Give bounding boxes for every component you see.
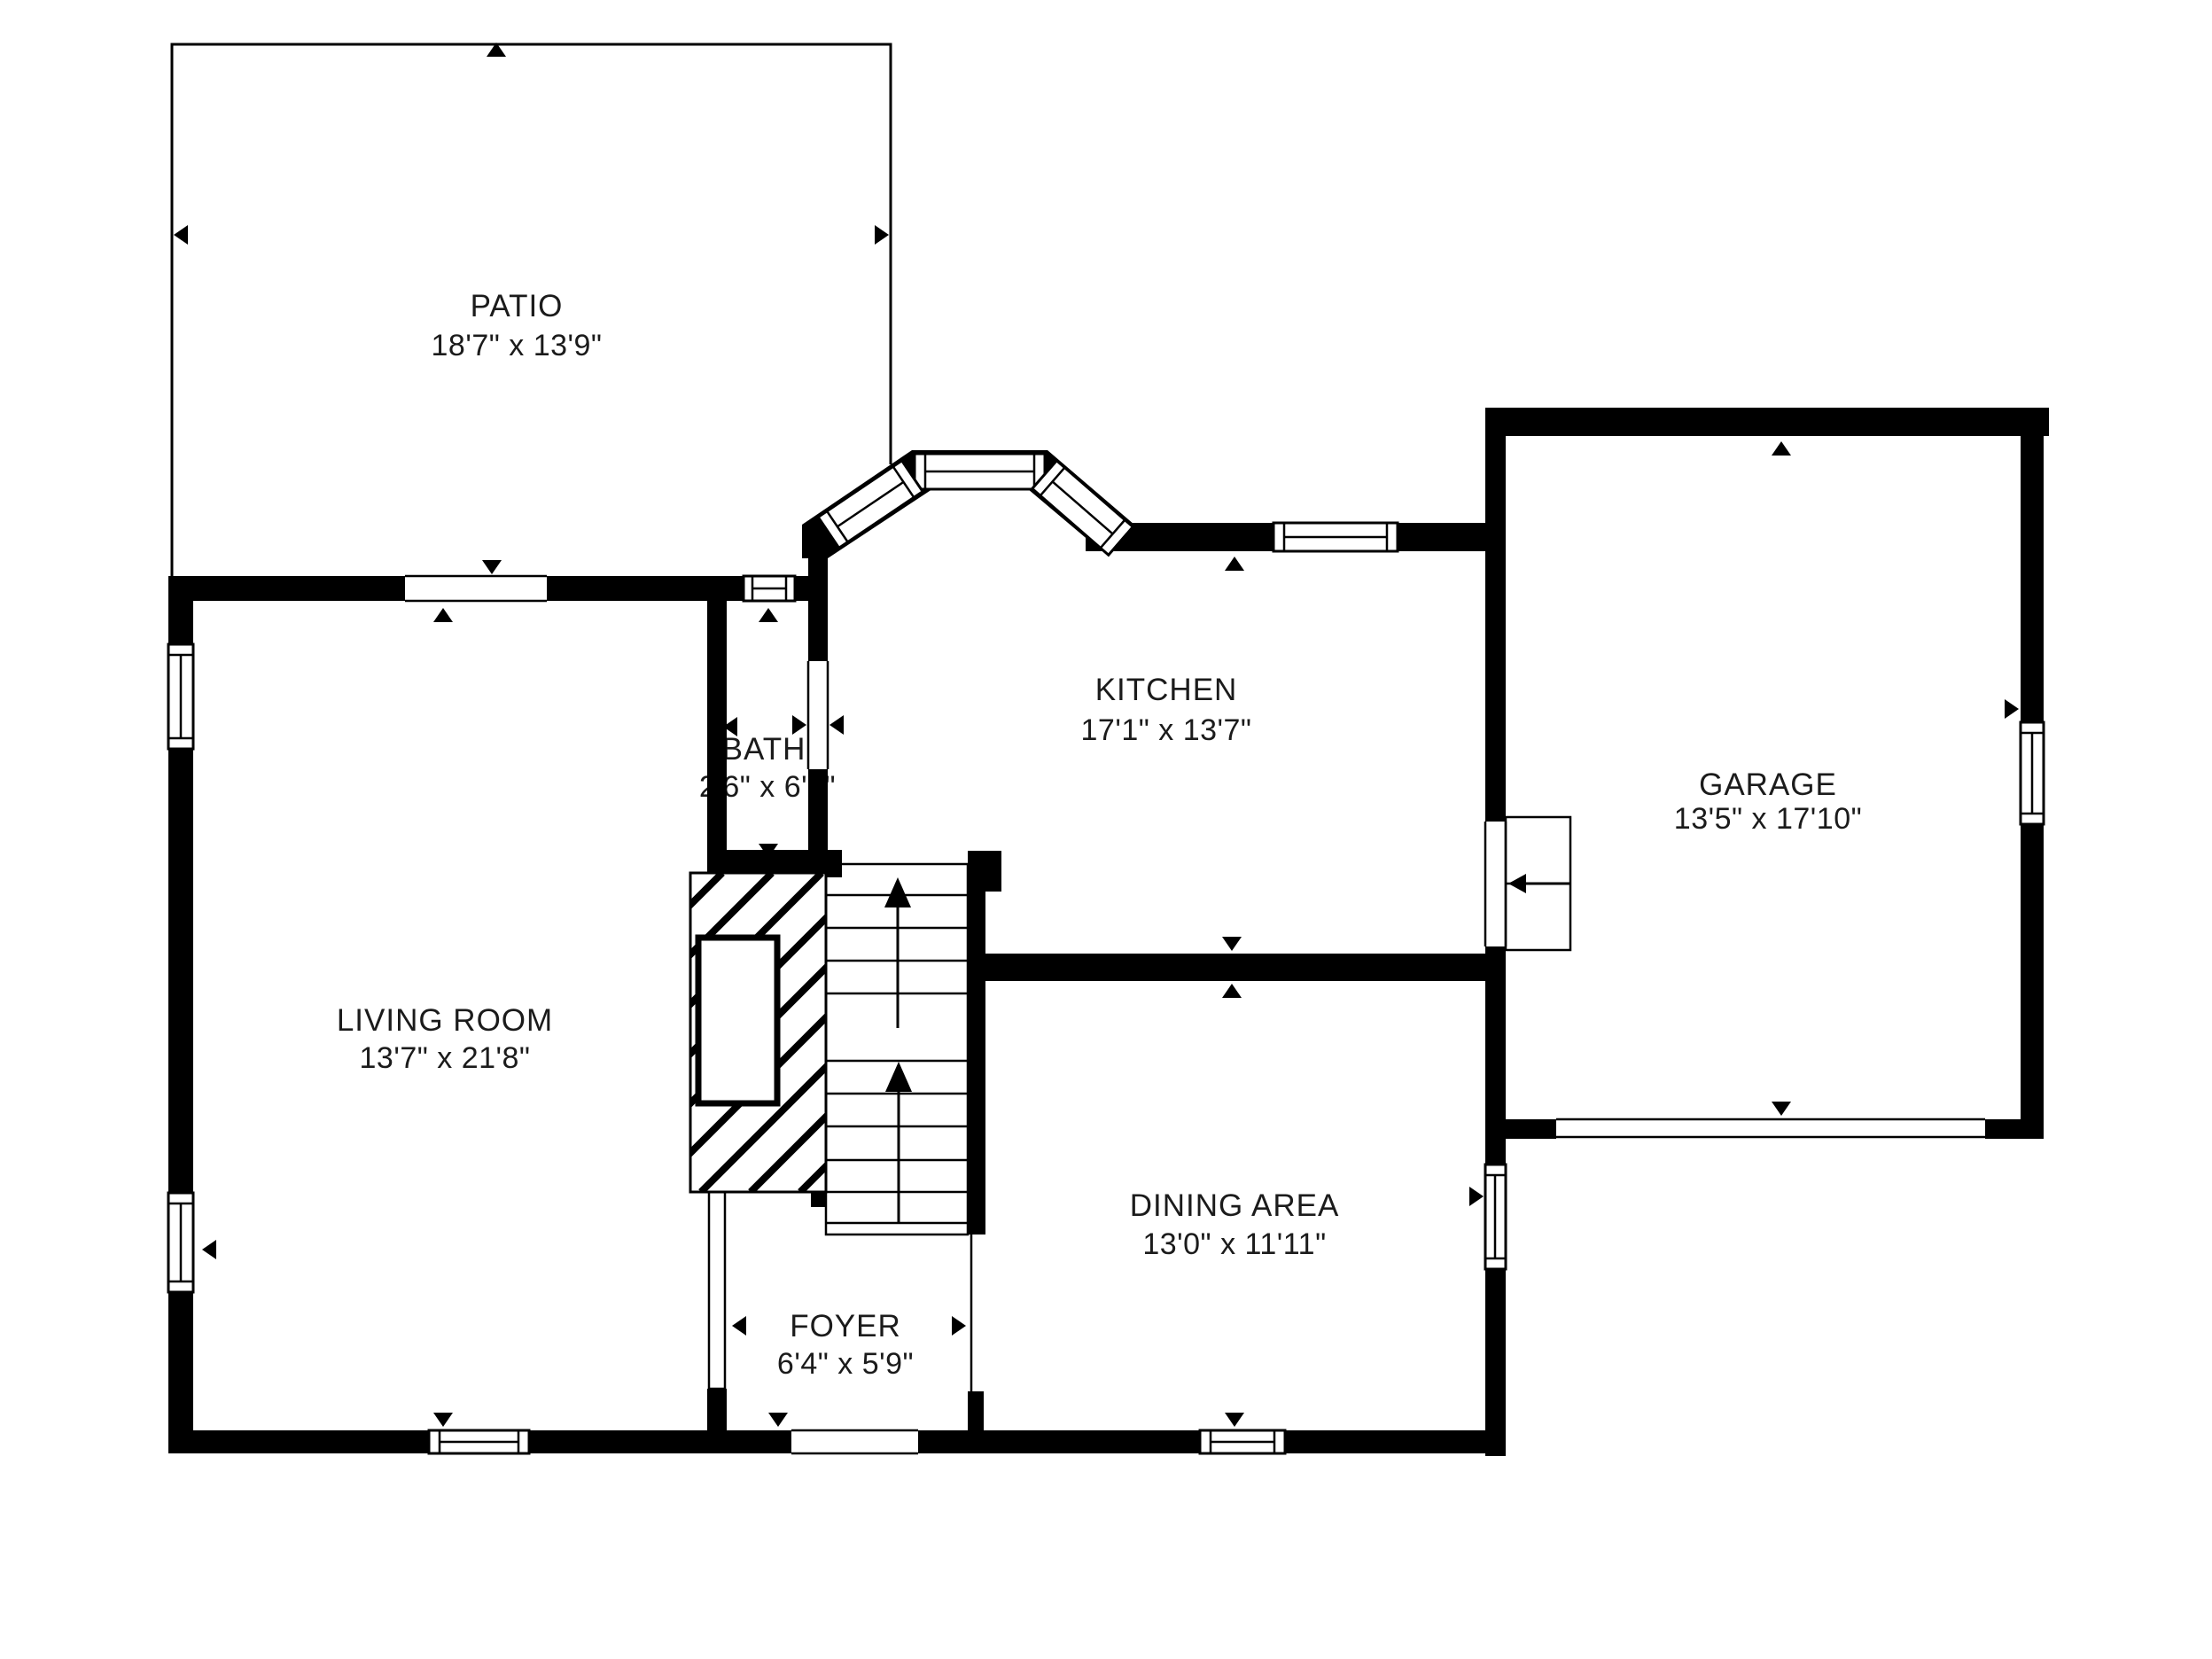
arrow-kitchen-door-left-icon	[829, 715, 844, 735]
garage-entry-opening	[1485, 822, 1506, 946]
wall-kitchen-dining-divider	[984, 954, 1485, 981]
door-openings	[405, 576, 1985, 1453]
bath-door-opening	[808, 661, 828, 769]
garage-entry-landing	[1506, 817, 1570, 950]
wall-foyer-left-stub	[707, 1389, 727, 1453]
arrow-foyer-door-icon	[768, 1413, 788, 1427]
front-door-opening	[791, 1430, 918, 1453]
window-garage-right	[2021, 722, 2044, 824]
arrow-dining-bottom-icon	[1225, 1413, 1244, 1427]
stairs	[826, 864, 968, 1235]
arrow-garage-door-icon	[1772, 1102, 1791, 1116]
room-label-dining-area: DINING AREA 13'0" x 11'11"	[1130, 1188, 1340, 1261]
arrow-garage-top-icon	[1772, 441, 1791, 456]
arrow-foyer-left-icon	[732, 1316, 746, 1336]
wall-living-top-left	[168, 576, 405, 601]
stair-up-arrow-upper	[884, 877, 911, 1028]
room-labels: PATIO 18'7" x 13'9" KITCHEN 17'1" x 13'7…	[337, 289, 1862, 1381]
arrow-living-left-icon	[202, 1240, 216, 1259]
garage-entry-arrow-icon	[1508, 874, 1526, 893]
wall-living-right	[707, 576, 727, 873]
patio-name: PATIO	[471, 289, 564, 323]
firebox	[698, 938, 777, 1103]
arrow-patio-left-icon	[174, 225, 188, 245]
window-bay-center	[915, 454, 1045, 489]
arrow-divider-up-icon	[1222, 984, 1242, 998]
foyer-dims: 6'4" x 5'9"	[777, 1347, 914, 1381]
window-dining-right	[1485, 1164, 1506, 1269]
wall-garage-bottom-right	[1985, 1119, 2044, 1139]
garage-name: GARAGE	[1699, 767, 1837, 802]
wall-kitchen-left-lower	[808, 769, 828, 877]
wall-bottom-a	[168, 1430, 429, 1453]
arrow-foyer-right-icon	[952, 1316, 966, 1336]
room-label-patio: PATIO 18'7" x 13'9"	[432, 289, 603, 362]
floor-plan: BATH 2'6" x 6'8"	[0, 0, 2212, 1659]
arrow-patio-door-up-icon	[433, 608, 453, 622]
patio-door-opening	[405, 576, 547, 601]
window-bay-right	[1032, 461, 1133, 555]
wall-chimney-stub	[811, 1192, 826, 1207]
wall-garage-bottom-left	[1506, 1119, 1556, 1139]
room-label-living-room: LIVING ROOM 13'7" x 21'8"	[337, 1003, 553, 1075]
arrow-patio-right-icon	[875, 225, 889, 245]
wall-stairs-right	[968, 851, 985, 1235]
patio-dims: 18'7" x 13'9"	[432, 329, 603, 362]
bath-name: BATH	[722, 732, 806, 767]
dining-area-dims: 13'0" x 11'11"	[1142, 1227, 1326, 1261]
kitchen-dims: 17'1" x 13'7"	[1081, 713, 1252, 747]
foyer-living-opening	[709, 1192, 725, 1389]
kitchen-name: KITCHEN	[1095, 673, 1238, 707]
garage-door-opening	[1556, 1119, 1985, 1137]
arrow-living-bottom-icon	[433, 1413, 453, 1427]
window-living-left-upper	[168, 644, 193, 749]
living-room-dims: 13'7" x 21'8"	[360, 1041, 531, 1075]
stair-up-arrow-lower	[885, 1062, 912, 1223]
living-room-name: LIVING ROOM	[337, 1003, 553, 1038]
window-living-left-lower	[168, 1193, 193, 1292]
wall-bottom-d	[1285, 1430, 1506, 1453]
arrow-bath-window-icon	[759, 608, 778, 622]
wall-foyer-right-stub	[968, 1391, 984, 1453]
window-dining-bottom	[1200, 1430, 1285, 1453]
wall-bottom-c	[918, 1430, 1200, 1453]
room-label-kitchen: KITCHEN 17'1" x 13'7"	[1081, 673, 1252, 747]
foyer-name: FOYER	[790, 1309, 901, 1344]
arrow-patio-door-down-icon	[482, 560, 502, 574]
arrow-garage-right-icon	[2005, 699, 2019, 719]
wall-garage-top	[1485, 408, 2049, 436]
wall-bottom-b	[529, 1430, 791, 1453]
garage-dims: 13'5" x 17'10"	[1674, 802, 1862, 836]
arrow-dining-window-icon	[1469, 1187, 1484, 1206]
arrow-kitchen-top-icon	[1225, 557, 1244, 571]
room-label-foyer: FOYER 6'4" x 5'9"	[777, 1309, 914, 1381]
window-bath-top	[744, 576, 795, 601]
window-kitchen-top	[1273, 523, 1398, 551]
arrow-divider-down-icon	[1222, 937, 1242, 951]
room-label-garage: GARAGE 13'5" x 17'10"	[1674, 767, 1862, 836]
window-living-bottom	[429, 1430, 529, 1453]
walls	[168, 408, 2049, 1456]
dining-area-name: DINING AREA	[1130, 1188, 1340, 1223]
wall-garage-divider-upper	[1485, 436, 1506, 822]
